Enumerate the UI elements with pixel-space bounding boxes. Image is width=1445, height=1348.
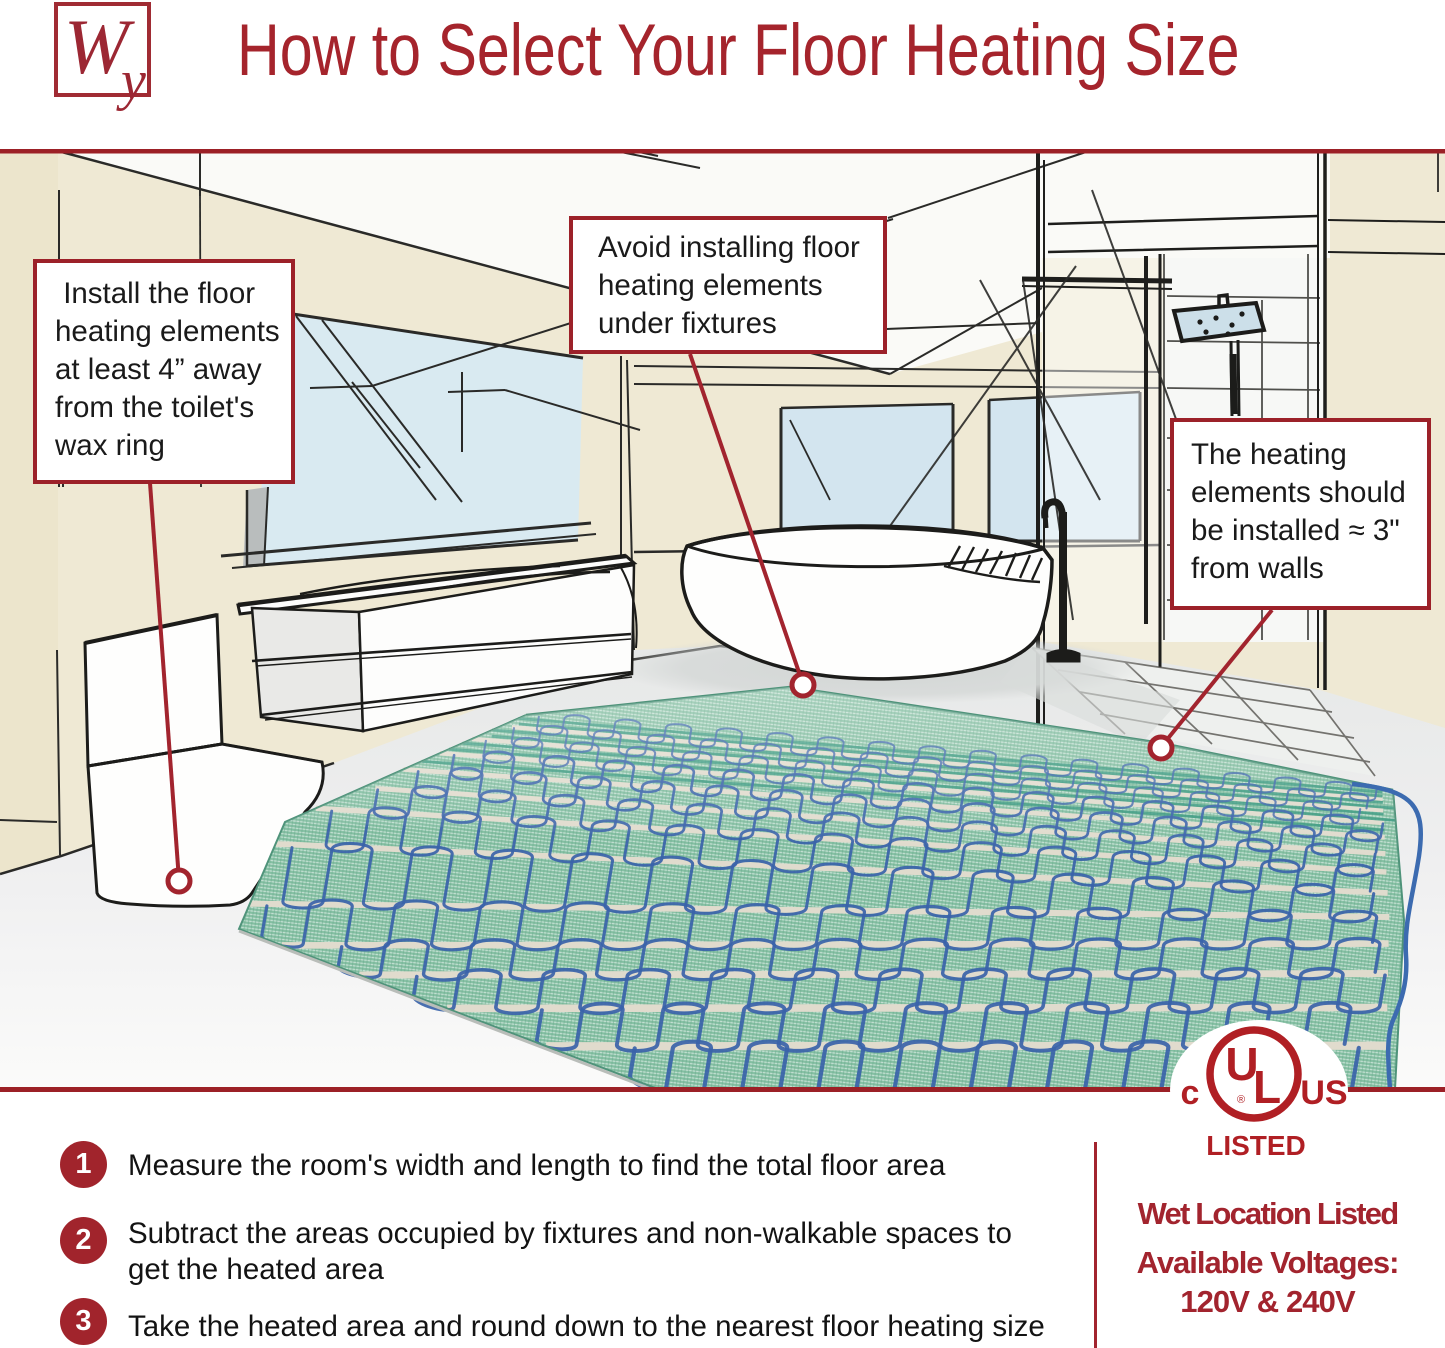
svg-text:®: ®: [1237, 1094, 1245, 1106]
svg-text:L: L: [1253, 1061, 1281, 1113]
svg-text:US: US: [1300, 1074, 1347, 1112]
svg-text:LISTED: LISTED: [1206, 1130, 1306, 1161]
svg-text:c: c: [1181, 1074, 1200, 1112]
